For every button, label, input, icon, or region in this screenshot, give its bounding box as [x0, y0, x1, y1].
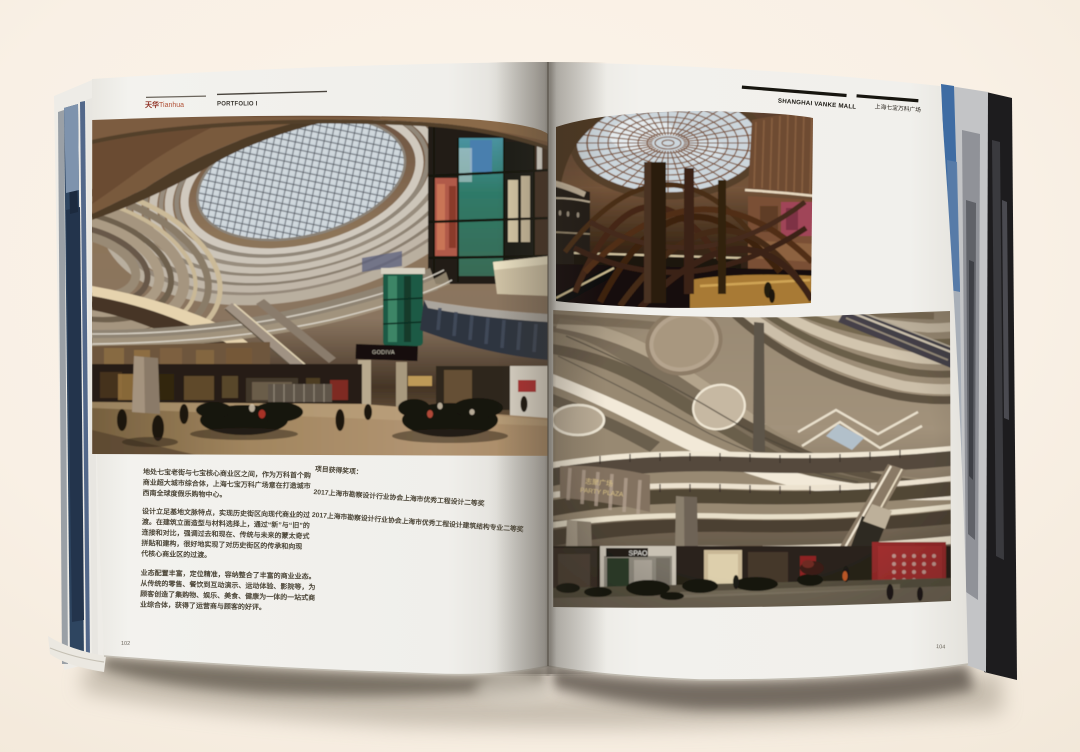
svg-text:PORTFOLIO I: PORTFOLIO I	[217, 102, 258, 108]
svg-text:天华Tianhua: 天华Tianhua	[145, 100, 184, 109]
svg-text:GODIVA: GODIVA	[372, 350, 395, 356]
svg-text:104: 104	[936, 644, 946, 651]
svg-text:102: 102	[121, 641, 130, 647]
